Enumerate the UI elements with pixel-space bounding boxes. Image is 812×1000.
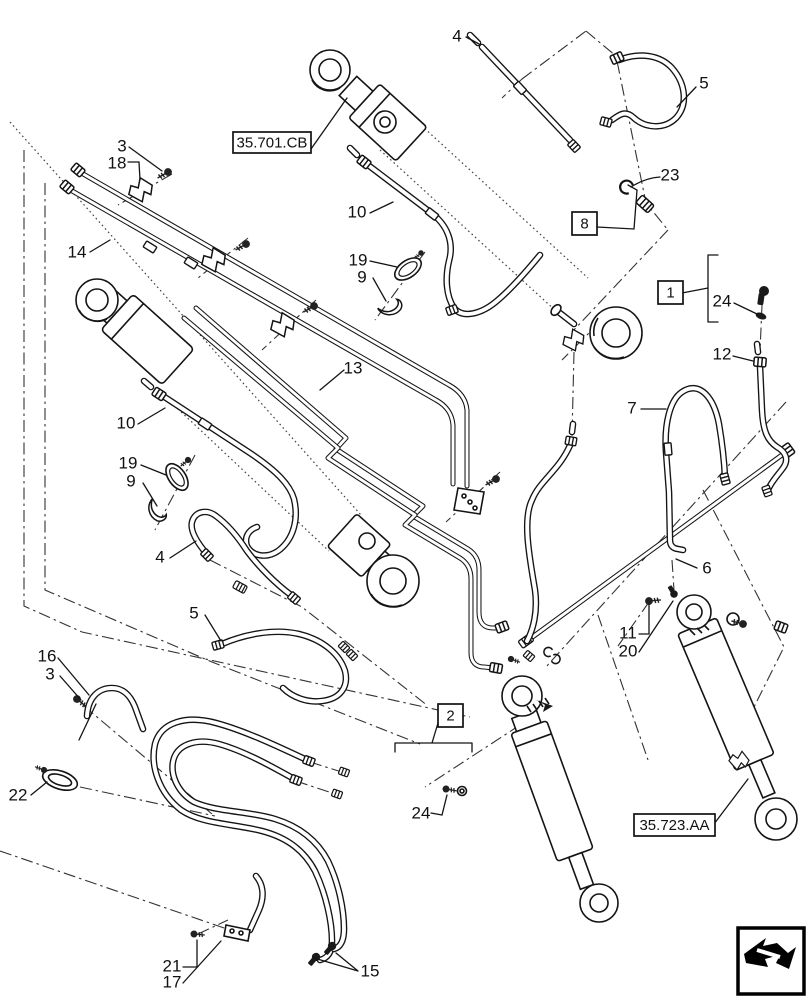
callout-3: 3 (45, 664, 54, 683)
parts-diagram-page: 35.701.CB81235.723.AA 318141019945232413… (0, 0, 812, 1000)
svg-text:8: 8 (580, 215, 588, 232)
callout-13: 13 (344, 358, 363, 377)
callout-15: 15 (361, 961, 380, 980)
elbow-fitting-24 (757, 286, 769, 305)
callout-5: 5 (189, 603, 198, 622)
callout-16: 16 (38, 646, 57, 665)
ref-box-35.701.CB[interactable]: 35.701.CB (233, 132, 311, 153)
callout-14: 14 (68, 242, 87, 261)
hydraulic-cylinder-right (677, 595, 797, 840)
callout-22: 22 (9, 785, 28, 804)
ref-box-35.723.AA[interactable]: 35.723.AA (634, 814, 715, 836)
callout-18: 18 (108, 153, 127, 172)
callout-4: 4 (155, 547, 164, 566)
ref-box-2: 2 (438, 704, 463, 727)
callout-17: 17 (163, 972, 182, 991)
callout-4: 4 (452, 26, 461, 45)
callout-23: 23 (661, 165, 680, 184)
tube-6 (518, 443, 795, 662)
callout-11: 11 (619, 623, 637, 642)
callout-12: 12 (713, 344, 732, 363)
callout-19: 19 (119, 453, 138, 472)
callout-layer: 3181410199452324131019945163222117151276… (9, 26, 732, 991)
svg-text:1: 1 (666, 284, 674, 301)
callout-9: 9 (357, 267, 366, 286)
refbox-layer: 35.701.CB81235.723.AA (233, 132, 715, 836)
page-turn-logo[interactable] (738, 928, 804, 994)
callout-7: 7 (627, 398, 636, 417)
callout-9: 9 (126, 471, 135, 490)
callout-24: 24 (713, 291, 732, 310)
callout-5: 5 (699, 73, 708, 92)
svg-text:2: 2 (446, 707, 454, 724)
ref-box-8: 8 (572, 212, 597, 235)
callout-6: 6 (702, 558, 711, 577)
hydraulic-cylinder-bottom-middle (502, 676, 618, 922)
callout-24: 24 (412, 803, 431, 822)
hydraulic-cylinder-left (76, 279, 419, 607)
svg-text:35.723.AA: 35.723.AA (639, 817, 709, 834)
leader-lines (31, 37, 757, 983)
callout-20: 20 (619, 641, 638, 660)
ref-box-1: 1 (658, 281, 683, 304)
callout-10: 10 (117, 413, 136, 432)
svg-text:35.701.CB: 35.701.CB (237, 134, 308, 151)
diagram-canvas: 35.701.CB81235.723.AA 318141019945232413… (0, 0, 812, 1000)
callout-10: 10 (348, 202, 367, 221)
